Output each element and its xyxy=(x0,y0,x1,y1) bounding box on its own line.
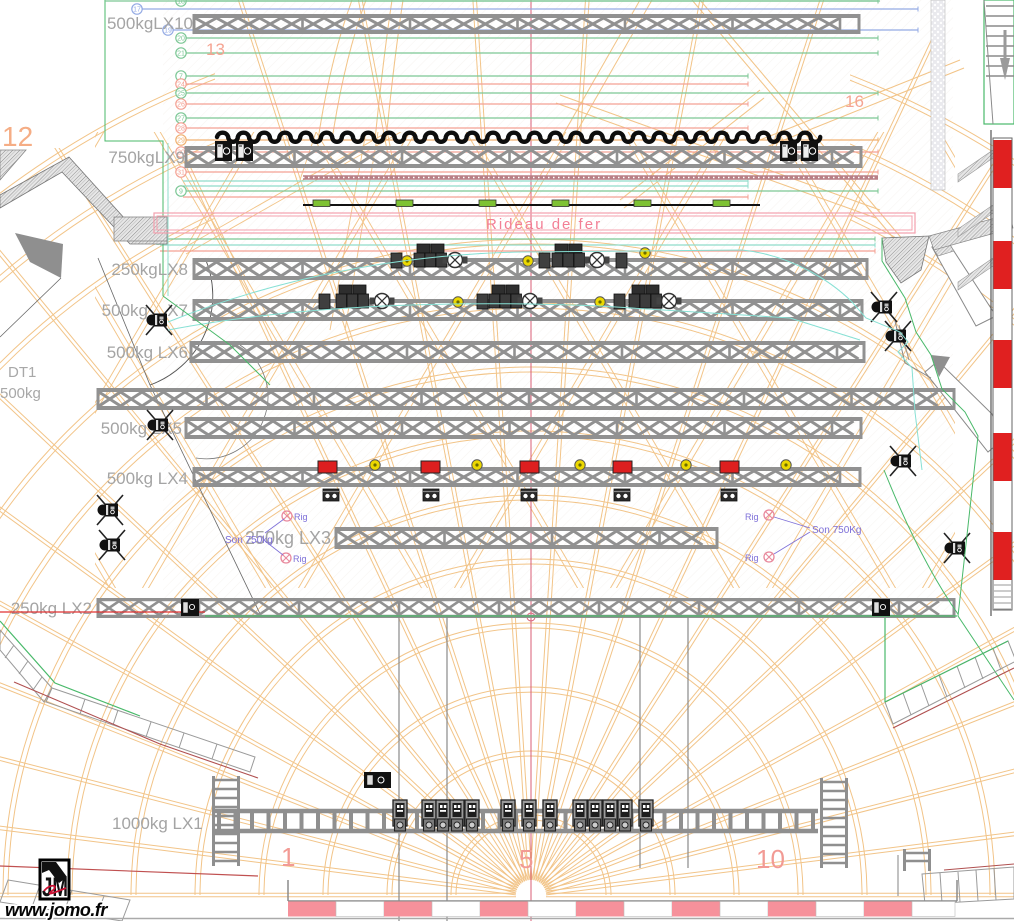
svg-text:500kg: 500kg xyxy=(0,385,41,402)
svg-text:17: 17 xyxy=(133,7,141,14)
svg-text:25: 25 xyxy=(177,91,185,98)
svg-text:Rig: Rig xyxy=(745,553,759,563)
svg-text:20: 20 xyxy=(177,36,185,43)
svg-text:21: 21 xyxy=(177,51,185,58)
svg-text:26: 26 xyxy=(177,102,185,109)
svg-text:12: 12 xyxy=(2,121,33,152)
svg-text:500kg: 500kg xyxy=(102,301,148,320)
svg-text:16: 16 xyxy=(845,92,864,111)
svg-text:Rig: Rig xyxy=(745,512,759,522)
svg-text:X7: X7 xyxy=(167,301,188,320)
svg-text:Rig: Rig xyxy=(294,512,308,522)
svg-text:1000kg LX1: 1000kg LX1 xyxy=(112,814,203,833)
svg-text:DT1: DT1 xyxy=(8,364,36,381)
svg-text:10: 10 xyxy=(756,844,785,874)
svg-text:250kgLX8: 250kgLX8 xyxy=(111,260,188,279)
svg-text:31: 31 xyxy=(177,170,185,177)
svg-text:1: 1 xyxy=(281,842,295,872)
svg-text:250kg LX2: 250kg LX2 xyxy=(11,599,92,618)
svg-text:5: 5 xyxy=(519,844,533,874)
svg-text:Rideau de fer: Rideau de fer xyxy=(486,216,602,233)
svg-text:www.jomo.fr: www.jomo.fr xyxy=(5,900,108,920)
svg-text:500kg LX6: 500kg LX6 xyxy=(107,343,188,362)
svg-text:28: 28 xyxy=(177,126,185,133)
svg-text:500kg LX4: 500kg LX4 xyxy=(107,469,188,488)
svg-text:Son 750kg: Son 750kg xyxy=(225,535,273,546)
svg-text:29: 29 xyxy=(177,138,185,145)
svg-text:500kgLX10: 500kgLX10 xyxy=(107,14,193,33)
svg-text:9: 9 xyxy=(179,189,183,196)
svg-text:27: 27 xyxy=(177,116,185,123)
svg-text:Rig: Rig xyxy=(293,554,307,564)
svg-text:13: 13 xyxy=(206,40,225,59)
svg-text:750kgLX9: 750kgLX9 xyxy=(108,148,185,167)
svg-text:Son 750Kg: Son 750Kg xyxy=(812,525,862,536)
